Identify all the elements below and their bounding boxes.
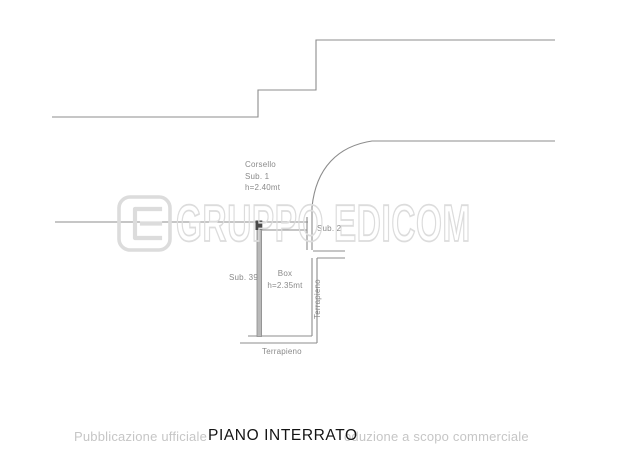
watermark-bottom-right: oduzione a scopo commerciale xyxy=(344,429,529,444)
corsello-sub: Sub. 1 xyxy=(245,171,280,183)
floor-title: PIANO INTERRATO xyxy=(208,427,358,445)
terrapieno-right-label: Terrapieno xyxy=(312,279,324,319)
watermark-bottom-left: Pubblicazione ufficiale xyxy=(74,429,207,444)
box-name: Box xyxy=(262,268,308,280)
sub39-label: Sub. 39 xyxy=(229,272,258,284)
floor-plan-page: Corsello Sub. 1 h=2.40mt Sub. 2 Sub. 39 … xyxy=(0,0,620,450)
box-label: Box h=2.35mt xyxy=(262,268,308,291)
corsello-name: Corsello xyxy=(245,159,280,171)
box-height: h=2.35mt xyxy=(262,280,308,292)
edicom-e-icon xyxy=(116,194,174,254)
gruppo-edicom-watermark: GRUPPO EDICOM xyxy=(176,199,471,249)
corsello-height: h=2.40mt xyxy=(245,182,280,194)
corsello-label: Corsello Sub. 1 h=2.40mt xyxy=(245,159,280,194)
stepped-boundary-line xyxy=(52,40,555,117)
terrapieno-bottom-label: Terrapieno xyxy=(262,346,302,358)
